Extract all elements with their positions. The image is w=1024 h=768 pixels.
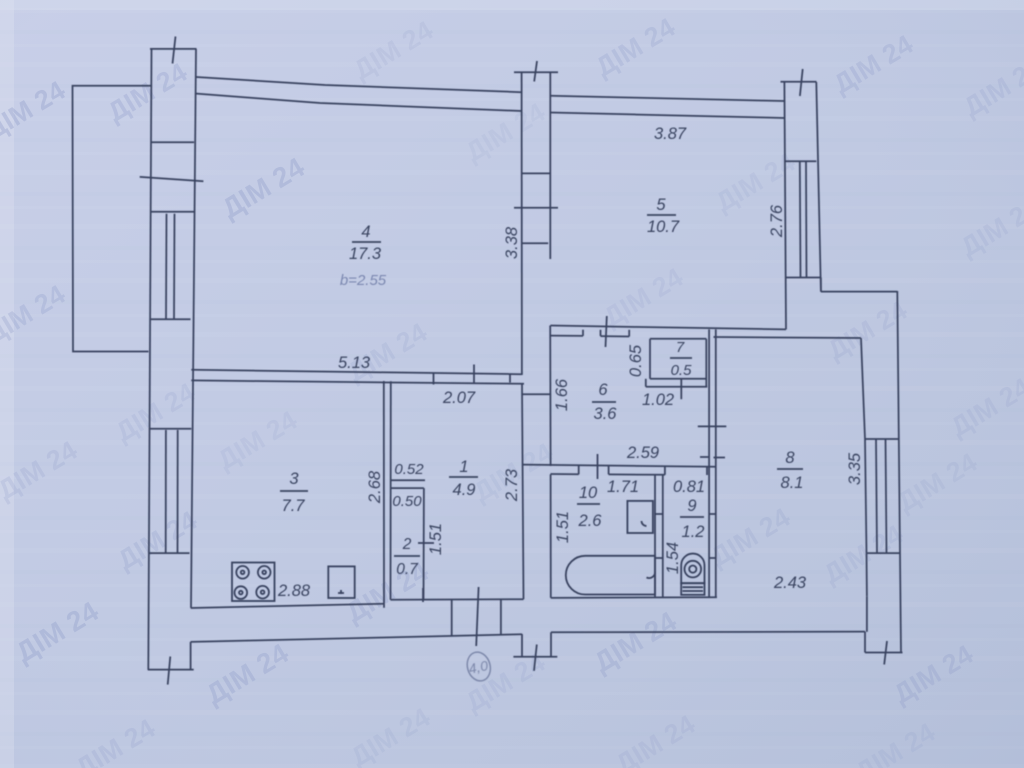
svg-text:3.35: 3.35 — [846, 452, 864, 485]
svg-text:4: 4 — [361, 223, 370, 241]
svg-text:1.66: 1.66 — [553, 378, 571, 411]
svg-text:8.1: 8.1 — [781, 474, 804, 492]
svg-text:1.54: 1.54 — [664, 542, 682, 574]
svg-text:0.81: 0.81 — [673, 478, 705, 496]
svg-text:2.76: 2.76 — [768, 204, 786, 238]
svg-text:b=2.55: b=2.55 — [340, 272, 387, 289]
svg-text:0.7: 0.7 — [396, 561, 419, 578]
svg-text:1: 1 — [459, 458, 468, 476]
svg-text:4.9: 4.9 — [453, 481, 476, 499]
svg-text:17.3: 17.3 — [349, 245, 382, 263]
svg-text:2.59: 2.59 — [626, 444, 659, 462]
svg-text:9: 9 — [687, 497, 696, 515]
svg-text:0.52: 0.52 — [394, 461, 424, 478]
svg-text:2: 2 — [402, 536, 412, 553]
svg-text:2.68: 2.68 — [366, 470, 384, 504]
svg-text:0.65: 0.65 — [627, 344, 645, 377]
svg-text:7: 7 — [676, 339, 685, 356]
svg-text:5.13: 5.13 — [338, 354, 371, 372]
svg-text:0.50: 0.50 — [392, 493, 422, 510]
svg-text:1.71: 1.71 — [607, 478, 639, 496]
svg-text:2.88: 2.88 — [277, 582, 311, 600]
svg-text:2.43: 2.43 — [773, 574, 807, 592]
svg-text:2.73: 2.73 — [503, 468, 521, 502]
svg-text:1.2: 1.2 — [682, 523, 705, 541]
svg-text:3.6: 3.6 — [594, 405, 618, 423]
svg-text:6: 6 — [598, 381, 608, 399]
svg-text:10.7: 10.7 — [647, 218, 680, 236]
svg-text:3: 3 — [289, 470, 299, 488]
svg-text:1.02: 1.02 — [642, 391, 674, 409]
svg-text:2.07: 2.07 — [442, 389, 476, 407]
svg-text:3.38: 3.38 — [503, 226, 521, 259]
svg-text:2.6: 2.6 — [578, 512, 603, 530]
svg-text:8: 8 — [785, 449, 795, 467]
svg-text:1.51: 1.51 — [554, 511, 572, 543]
svg-text:0.5: 0.5 — [671, 362, 693, 379]
svg-text:1.51: 1.51 — [427, 523, 445, 555]
svg-text:7.7: 7.7 — [282, 497, 306, 515]
svg-text:5: 5 — [656, 196, 666, 214]
svg-text:3.87: 3.87 — [654, 125, 687, 143]
svg-text:10: 10 — [579, 484, 598, 502]
